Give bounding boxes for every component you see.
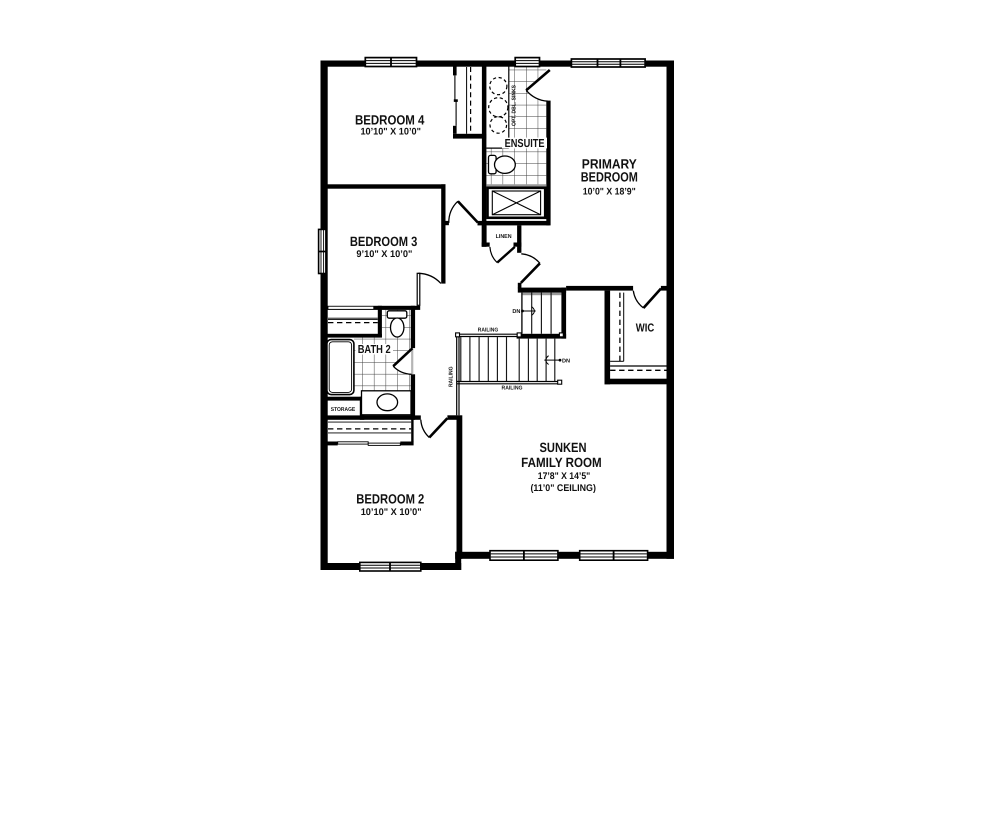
svg-text:LINEN: LINEN <box>496 234 512 240</box>
svg-text:SUNKEN: SUNKEN <box>540 440 587 455</box>
svg-text:BEDROOM 2: BEDROOM 2 <box>356 492 424 507</box>
svg-text:RAILING: RAILING <box>502 385 523 391</box>
svg-text:BEDROOM 3: BEDROOM 3 <box>350 234 418 249</box>
svg-text:9’10" X 10’0": 9’10" X 10’0" <box>356 249 412 260</box>
svg-text:STORAGE: STORAGE <box>331 407 356 413</box>
svg-text:10’10" X 10’0": 10’10" X 10’0" <box>360 126 421 137</box>
svg-text:10’0" X 18’9": 10’0" X 18’9" <box>583 187 636 198</box>
svg-text:BATH 2: BATH 2 <box>358 343 391 356</box>
svg-text:FAMILY ROOM: FAMILY ROOM <box>521 455 602 470</box>
svg-text:OPT. DBL. SINKS: OPT. DBL. SINKS <box>512 85 518 126</box>
svg-text:10’10" X 10’0": 10’10" X 10’0" <box>361 507 422 518</box>
svg-text:WIC: WIC <box>636 322 655 335</box>
svg-text:DN: DN <box>562 358 570 364</box>
svg-text:RAILING: RAILING <box>449 367 455 388</box>
svg-text:DN: DN <box>512 309 520 315</box>
svg-text:(11’0" CEILING): (11’0" CEILING) <box>530 483 596 494</box>
svg-text:ENSUITE: ENSUITE <box>505 137 545 150</box>
svg-text:17’8" X 14’5": 17’8" X 14’5" <box>538 471 591 482</box>
svg-text:RAILING: RAILING <box>478 328 499 334</box>
svg-text:BEDROOM: BEDROOM <box>581 170 638 185</box>
